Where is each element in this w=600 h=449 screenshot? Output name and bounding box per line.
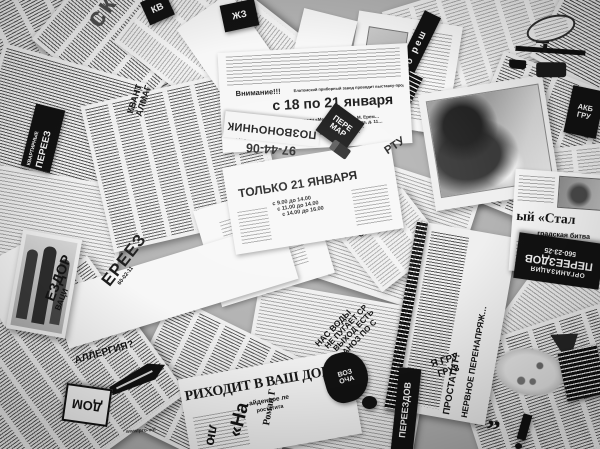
box-text: ГРУ: [576, 111, 591, 122]
dark-object: [536, 62, 566, 77]
exclamation-dot: [515, 443, 522, 449]
rifle-stock: [509, 59, 527, 69]
ad-box-dom: ДОМ: [62, 383, 113, 427]
article-photo: [557, 176, 600, 212]
box-text: КВ: [150, 1, 166, 15]
box-text: ЖЗ: [231, 9, 247, 22]
headline-text: ПОЗВОНОЧНИК: [227, 119, 317, 140]
black-blob: [362, 396, 377, 409]
newsprint-texture: [237, 207, 272, 245]
headline-text: ДОМ: [71, 396, 103, 414]
newsprint-texture: [226, 48, 401, 87]
headline-tolko: ТОЛЬКО 21 ЯНВАРЯ: [237, 169, 358, 200]
phone-number-97: 97-44-06: [246, 140, 297, 157]
headline-lyu: лю: [203, 424, 221, 447]
newsprint-texture: [351, 184, 393, 227]
newspaper-collage-photo: ЕЗДОР ВАЦИ ЕРЕЕЗ 60-02-11 АЛЛЕРГИЯ? ДОМ …: [0, 0, 600, 449]
strip-text: ПЕРЕЕЗДОВ: [398, 382, 413, 439]
schedule-times: с 9.00 до 14.00 с 11.00 до 14.00 с 14.00…: [272, 195, 324, 220]
headline-stalingrad: ый «Стал: [516, 209, 576, 227]
photo-caption-dashes: [517, 175, 555, 203]
rifle-barrel: [515, 46, 585, 55]
rifle-mount: [543, 44, 548, 52]
